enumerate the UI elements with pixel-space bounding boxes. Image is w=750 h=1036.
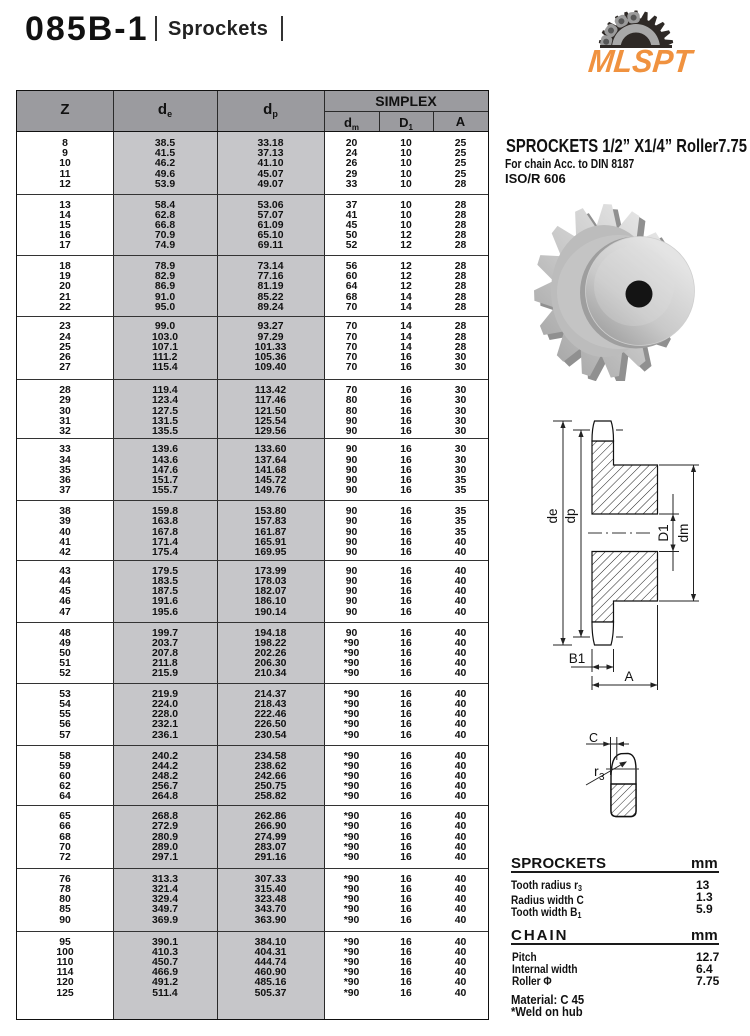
svg-text:B1: B1 — [569, 651, 586, 666]
svg-text:dm: dm — [676, 524, 691, 543]
svg-text:de: de — [545, 508, 560, 523]
svg-text:dp: dp — [563, 508, 578, 523]
svg-text:C: C — [589, 731, 598, 745]
svg-text:D1: D1 — [656, 524, 671, 541]
svg-text:A: A — [624, 669, 633, 684]
svg-text:3: 3 — [599, 772, 605, 783]
